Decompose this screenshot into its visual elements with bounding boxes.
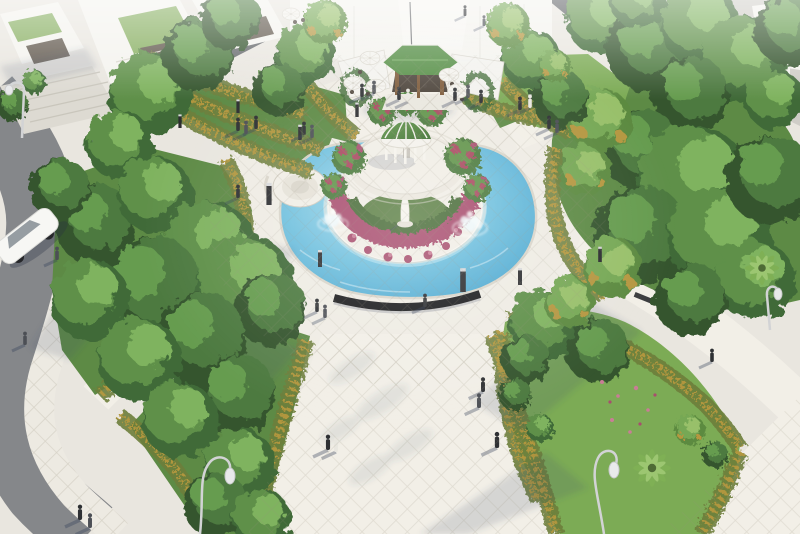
shrub [675, 415, 705, 445]
tree [142, 382, 218, 458]
sun-glow [138, 15, 678, 435]
tree [715, 240, 795, 320]
shrub [526, 414, 554, 442]
shrub [702, 442, 728, 468]
render-viewport [0, 0, 800, 534]
park-render [0, 0, 800, 534]
